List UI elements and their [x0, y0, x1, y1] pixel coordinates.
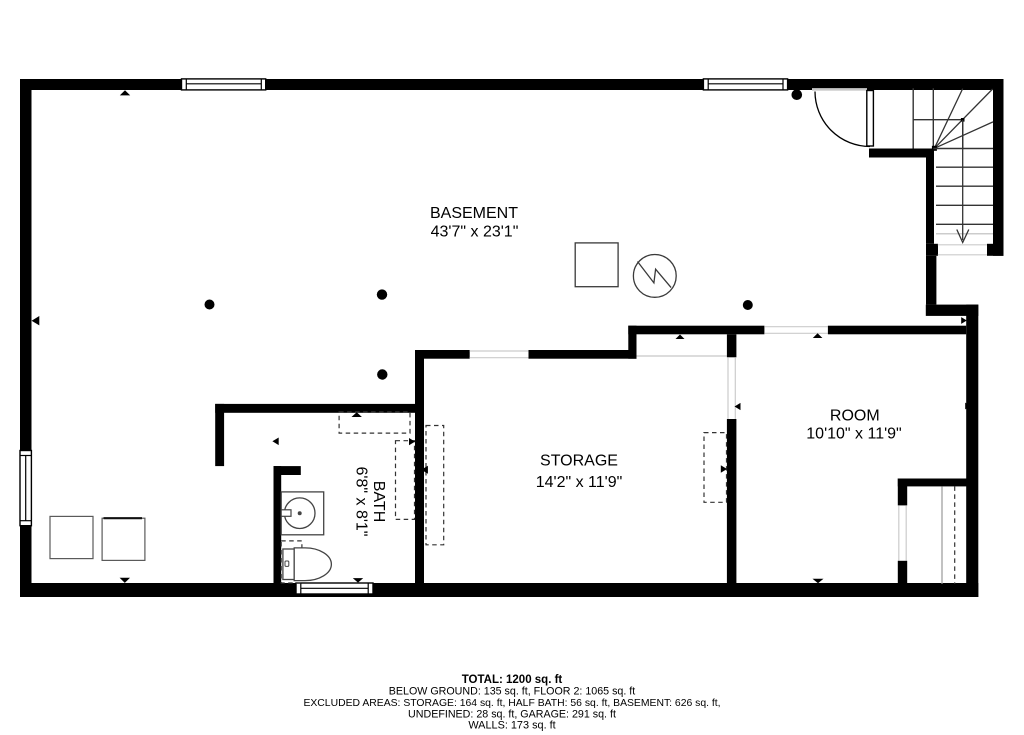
- svg-text:BASEMENT: BASEMENT: [430, 205, 518, 222]
- svg-text:BATH: BATH: [370, 481, 387, 522]
- svg-text:14'2" x 11'9": 14'2" x 11'9": [536, 474, 623, 491]
- svg-text:ROOM: ROOM: [830, 408, 880, 425]
- svg-text:STORAGE: STORAGE: [540, 452, 618, 469]
- svg-text:43'7" x 23'1": 43'7" x 23'1": [431, 223, 519, 240]
- svg-text:WALLS: 173 sq. ft: WALLS: 173 sq. ft: [468, 720, 555, 732]
- svg-text:BELOW GROUND: 135 sq. ft, FLOO: BELOW GROUND: 135 sq. ft, FLOOR 2: 1065 …: [389, 685, 636, 697]
- svg-text:10'10" x 11'9": 10'10" x 11'9": [806, 426, 901, 443]
- svg-text:6'8" x 8'1": 6'8" x 8'1": [353, 467, 370, 537]
- svg-text:UNDEFINED: 28 sq. ft, GARAGE:: UNDEFINED: 28 sq. ft, GARAGE: 291 sq. ft: [408, 709, 616, 721]
- svg-text:TOTAL: 1200 sq. ft: TOTAL: 1200 sq. ft: [462, 674, 563, 686]
